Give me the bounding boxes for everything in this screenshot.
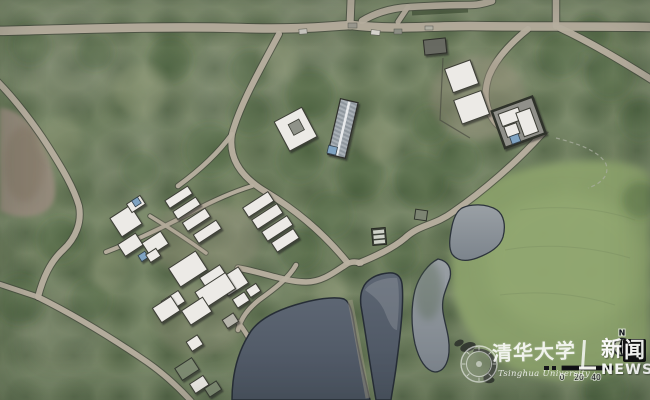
small-hut	[414, 209, 427, 221]
site-plan-map: N 0 20 40 清华大学 Tsinghua University 新 闻 N…	[0, 0, 650, 400]
compass-north-label: N	[619, 329, 626, 338]
container-truck	[371, 227, 386, 245]
scale-label-40: 40	[591, 373, 601, 382]
tsinghua-seal-icon	[461, 346, 497, 382]
greenhouse-building	[327, 99, 358, 159]
marsh-shade	[414, 260, 442, 320]
scale-label-20: 20	[574, 373, 584, 382]
scale-label-0: 0	[560, 373, 565, 382]
pond-large-left	[232, 298, 370, 400]
map-canvas: N 0 20 40	[0, 0, 650, 400]
